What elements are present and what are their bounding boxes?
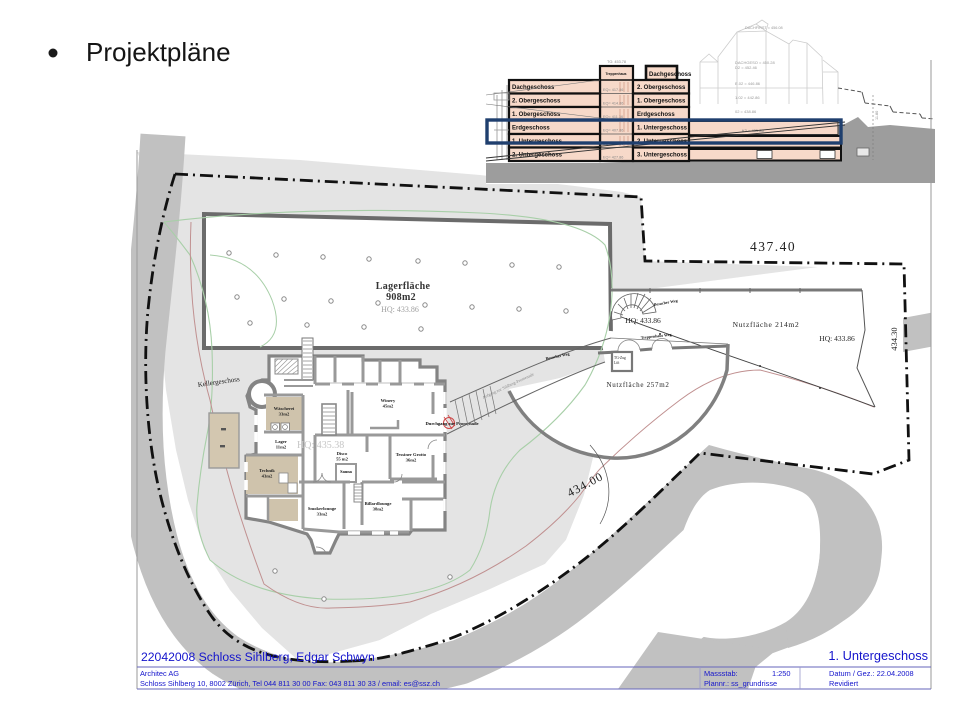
svg-text:TG-Zug: TG-Zug [614,356,626,360]
svg-text:1. Obergeschoss: 1. Obergeschoss [637,99,686,105]
svg-text:908m2: 908m2 [386,292,416,303]
svg-text:11.80: 11.80 [875,111,879,120]
svg-text:Wäscherei: Wäscherei [274,406,295,411]
svg-text:2. Obergeschoss: 2. Obergeschoss [637,85,686,91]
svg-text:Dachgeschoss: Dachgeschoss [512,85,555,91]
svg-text:Datum / Gez.: 22.04.2008: Datum / Gez.: 22.04.2008 [829,669,914,678]
svg-text:434.30: 434.30 [889,327,899,350]
svg-text:Smokerlounge: Smokerlounge [308,506,336,511]
svg-text:Lift: Lift [614,361,619,365]
svg-text:HQ: 433.86: HQ: 433.86 [381,305,419,314]
svg-text:Erdgeschoss: Erdgeschoss [637,112,675,118]
svg-text:Nutzfläche 214m2: Nutzfläche 214m2 [733,320,800,329]
svg-text:Technik: Technik [259,468,275,473]
svg-text:Billardlounge: Billardlounge [365,501,392,506]
svg-text:2. Obergeschoss: 2. Obergeschoss [512,99,561,105]
svg-text:1. Obergeschoss: 1. Obergeschoss [512,112,561,118]
svg-text:HQ: 433.86: HQ: 433.86 [625,316,661,325]
svg-text:HQ: 433.86: HQ: 433.86 [819,334,855,343]
svg-text:Treppenhaus: Treppenhaus [605,72,626,76]
svg-text:D2 = 452.46: D2 = 452.46 [735,65,758,70]
svg-text:HQ: 435.38: HQ: 435.38 [297,440,344,451]
svg-text:Massstab:: Massstab: [704,669,738,678]
svg-text:45m2: 45m2 [383,404,394,409]
svg-text:Schloss Sihlberg 10, 8002 Züri: Schloss Sihlberg 10, 8002 Zürich, Tel 04… [140,679,440,688]
svg-text:02 = 438.86: 02 = 438.86 [735,109,757,114]
svg-text:TG: 453.78: TG: 453.78 [607,60,626,64]
svg-text:3. Untergeschoss: 3. Untergeschoss [637,153,688,159]
svg-text:1.02 = 442.86: 1.02 = 442.86 [735,95,760,100]
svg-text:Tessiner Grotto: Tessiner Grotto [396,452,427,457]
svg-text:E.02 = 446.86: E.02 = 446.86 [735,81,761,86]
svg-text:Erdgeschoss: Erdgeschoss [512,126,550,132]
svg-text:Plannr.: ss_grundrisse: Plannr.: ss_grundrisse [704,679,777,688]
svg-text:1. Untergeschoss: 1. Untergeschoss [637,126,688,132]
svg-text:38m2: 38m2 [373,507,384,512]
svg-text:Lager: Lager [275,439,287,444]
svg-text:Architec AG: Architec AG [140,669,179,678]
svg-text:DACHFIRST = 456.08: DACHFIRST = 456.08 [745,26,783,30]
svg-text:Lagerfläche: Lagerfläche [376,281,431,292]
svg-text:Sauna: Sauna [340,469,353,474]
svg-text:33m2: 33m2 [279,412,290,417]
svg-text:11m2: 11m2 [276,445,287,450]
svg-text:1:250: 1:250 [772,669,791,678]
svg-text:22042008 Schloss Sihlberg, Edg: 22042008 Schloss Sihlberg, Edgar Schwyn [141,650,375,664]
svg-text:Disco: Disco [337,451,348,456]
svg-text:Nutzfläche 257m2: Nutzfläche 257m2 [606,381,669,389]
svg-text:55 m2: 55 m2 [336,457,349,462]
svg-text:Winery: Winery [381,398,396,403]
svg-text:43m2: 43m2 [262,474,273,479]
svg-text:Dachgeschoss: Dachgeschoss [649,72,692,78]
svg-text:Projektpläne: Projektpläne [86,37,231,67]
svg-text:1. Untergeschoss: 1. Untergeschoss [828,648,928,663]
svg-text:EQ= 427.86: EQ= 427.86 [603,156,623,160]
svg-text:33m2: 33m2 [317,512,328,517]
svg-text:437.40: 437.40 [750,239,796,254]
svg-text:Revidiert: Revidiert [829,679,858,688]
svg-text:36m2: 36m2 [406,458,417,463]
